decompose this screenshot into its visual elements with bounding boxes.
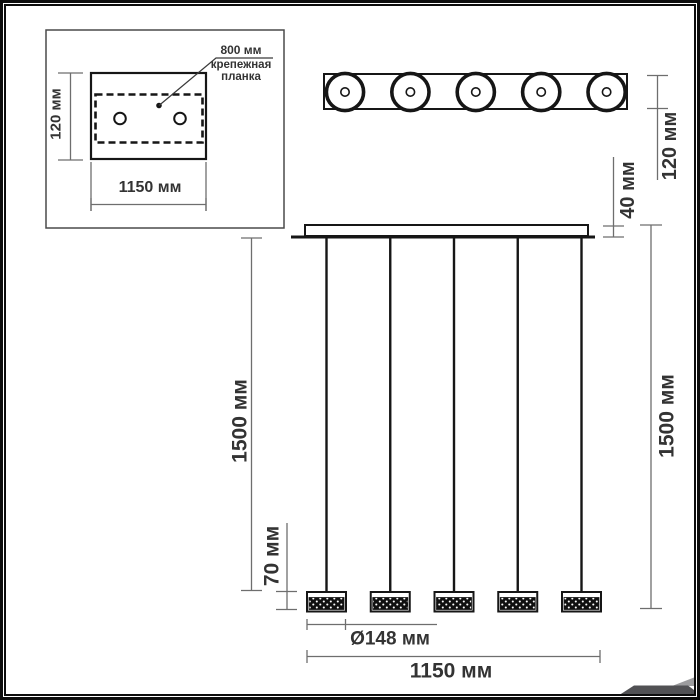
ceiling-plate-outline (91, 73, 206, 159)
suspension-right-label: 1500 мм (657, 374, 678, 458)
drawing-layer (0, 0, 700, 700)
lamp-shades (307, 592, 601, 612)
lamp-shade-mesh (564, 598, 599, 610)
page-fold-decoration (617, 678, 694, 697)
page-fold-dark (617, 686, 694, 697)
canopy-thickness-label: 40 мм (618, 161, 638, 218)
mounting-bar-label-line2: планка (211, 71, 272, 83)
lamp-shade-mesh (373, 598, 408, 610)
front-view (241, 225, 662, 663)
lamp-center-hole (341, 88, 349, 96)
shade-height-label: 70 мм (262, 526, 283, 586)
lamp-shade-mesh (500, 598, 535, 610)
mounting-bar-label: крепежная планка (211, 59, 272, 83)
mounting-hole-left (114, 113, 126, 125)
inset-hole-spacing-label: 800 мм (220, 44, 261, 56)
lamp-center-hole (472, 88, 480, 96)
lamp-center-hole (602, 88, 610, 96)
mounting-hole-right (174, 113, 186, 125)
top-view-depth-label: 120 мм (660, 112, 680, 181)
lamp-center-hole (406, 88, 414, 96)
canopy-bar (305, 225, 588, 236)
inset-width-label: 1150 мм (119, 180, 182, 196)
suspension-rods (327, 238, 582, 593)
inset-depth-label: 120 мм (49, 88, 64, 139)
page-fold-light (672, 678, 694, 687)
mounting-bar-label-line1: крепежная (211, 59, 272, 71)
lamp-shade-mesh (437, 598, 472, 610)
suspension-left-label: 1500 мм (230, 379, 251, 463)
overall-width-label: 1150 мм (410, 661, 492, 682)
canopy-lip (291, 236, 595, 239)
technical-drawing: 800 мм крепежная планка 120 мм 1150 мм 1… (0, 0, 700, 700)
lamp-shade-mesh (309, 598, 344, 610)
shade-diameter-label: Ø148 мм (350, 630, 430, 649)
lamp-center-hole (537, 88, 545, 96)
